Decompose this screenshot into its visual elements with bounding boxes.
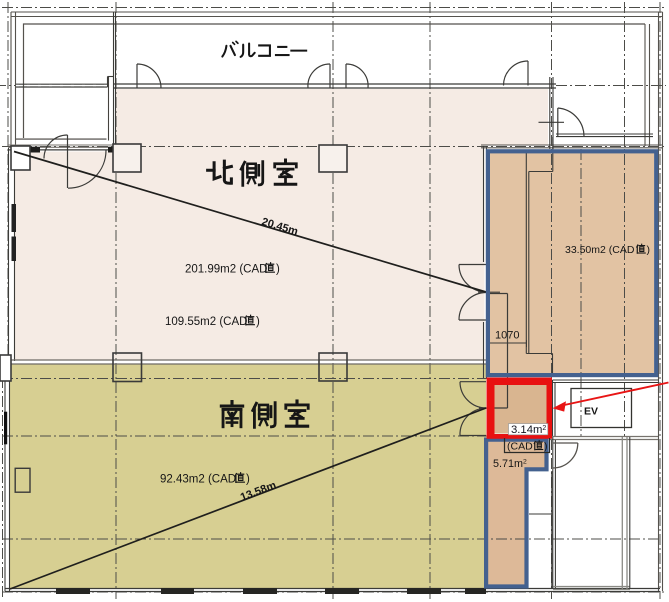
svg-text:3.14m2: 3.14m2 bbox=[511, 424, 546, 436]
svg-text:): ) bbox=[544, 441, 548, 453]
svg-text:(CAD: (CAD bbox=[507, 441, 533, 453]
svg-text:): ) bbox=[276, 264, 280, 276]
svg-text:): ) bbox=[256, 316, 260, 328]
svg-text:5.71m2: 5.71m2 bbox=[493, 458, 527, 470]
svg-text:201.99m2 (CAD: 201.99m2 (CAD bbox=[185, 264, 267, 276]
svg-text:): ) bbox=[246, 474, 250, 486]
svg-text:109.55m2 (CAD: 109.55m2 (CAD bbox=[165, 316, 247, 328]
svg-text:92.43m2 (CAD: 92.43m2 (CAD bbox=[160, 474, 236, 486]
svg-text:): ) bbox=[647, 244, 651, 256]
svg-text:1070: 1070 bbox=[495, 330, 519, 342]
svg-text:33.50m2 (CAD: 33.50m2 (CAD bbox=[565, 244, 635, 256]
svg-text:EV: EV bbox=[584, 406, 598, 418]
